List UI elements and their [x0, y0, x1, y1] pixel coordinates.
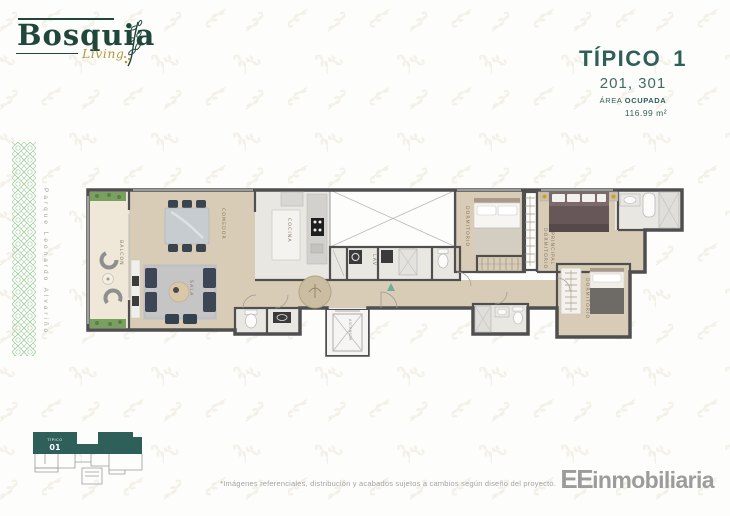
stove	[311, 218, 324, 236]
room-label-comedor: COMEDOR	[220, 208, 226, 240]
title-block: TÍPICO1 201, 301 ÁREA OCUPADA 116.99 m²	[558, 46, 708, 118]
plan-type-title: TÍPICO1	[558, 46, 708, 72]
elevator: ASCENSOR	[327, 310, 368, 355]
street-name-vertical: Parque Leonardo Alvariño	[42, 188, 49, 338]
tv-console	[131, 260, 140, 318]
plan-type-label: TÍPICO	[579, 46, 661, 71]
elevator-label: ASCENSOR	[348, 319, 352, 341]
room-label-dormitorio3: DORMITORIO	[584, 278, 590, 319]
room-label-master-1: DORMITORIO	[542, 228, 548, 269]
room-label-sala: SALA	[188, 280, 194, 296]
brand-tagline: Living	[82, 46, 124, 61]
fridge	[281, 192, 303, 206]
room-label-lav: LAV	[371, 254, 377, 266]
room-label-balcon: BALCON	[118, 240, 124, 266]
armchair	[145, 268, 157, 288]
toilet	[438, 254, 448, 268]
floorplan: BALCON COMEDOR SALA COCINA	[85, 180, 685, 380]
developer-logo: EEinmobiliaria	[560, 464, 714, 495]
keyplan-number: 01	[49, 443, 61, 452]
island	[272, 210, 300, 260]
ottoman	[165, 314, 179, 324]
brand-logo: Bosquia Living	[16, 18, 146, 61]
living-area: SALA	[131, 260, 217, 324]
developer-logo-bold: EE	[560, 464, 592, 495]
headboard	[590, 268, 624, 272]
room-label-dormitorio1: DORMITORIO	[464, 206, 470, 247]
armchair	[203, 292, 216, 312]
keyplan: TÍPICO 01	[30, 424, 148, 494]
area-label: ÁREA OCUPADA	[558, 96, 708, 105]
bedroom-3: DORMITORIO	[557, 268, 624, 319]
ottoman	[183, 314, 197, 324]
armchair	[203, 268, 216, 288]
room-label-master-2: PRINCIPAL	[549, 232, 555, 265]
plan-type-number: 1	[673, 46, 687, 71]
headboard	[474, 198, 520, 203]
bath-vanity	[273, 312, 291, 323]
shaft-void	[330, 190, 456, 247]
ornament-band	[12, 142, 36, 356]
flyer-canvas: { "brand": {"name": "Bosquia", "tagline"…	[0, 0, 730, 516]
armchair	[145, 292, 157, 312]
coffee-table	[169, 282, 189, 302]
keyplan-other-units	[35, 454, 142, 484]
washer	[349, 250, 362, 264]
logo-rule-bottom	[16, 53, 78, 54]
unit-numbers: 201, 301	[558, 75, 708, 92]
disclaimer-text: *Imágenes referenciales, distribución y …	[220, 479, 556, 488]
leaf-branch-icon	[120, 18, 146, 68]
keyplan-label: TÍPICO	[46, 437, 62, 442]
toilet	[514, 312, 523, 324]
developer-logo-rest: inmobiliaria	[592, 467, 714, 494]
toilet	[246, 314, 257, 328]
bath-vanity	[381, 250, 393, 263]
area-value: 116.99 m²	[558, 108, 708, 118]
bathtub	[643, 193, 655, 217]
room-label-cocina: COCINA	[286, 218, 292, 243]
kitchen-sink	[311, 244, 323, 253]
